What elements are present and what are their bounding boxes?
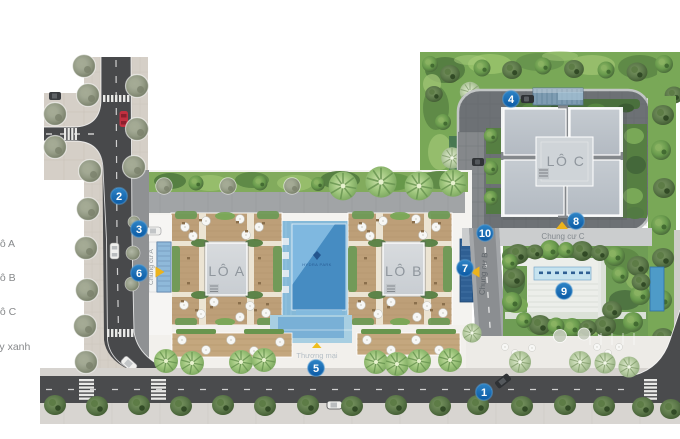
svg-text:7: 7: [462, 263, 468, 275]
svg-text:Thương mại: Thương mại: [296, 351, 338, 360]
svg-text:LÔ A: LÔ A: [208, 263, 245, 279]
svg-text:9: 9: [561, 286, 567, 298]
svg-text:Lô B: Lô B: [0, 272, 16, 284]
svg-text:5: 5: [313, 363, 319, 375]
svg-text:1: 1: [481, 387, 487, 399]
svg-text:HYDRA PARK: HYDRA PARK: [302, 262, 332, 267]
svg-text:LÔ B: LÔ B: [385, 263, 423, 279]
svg-text:4: 4: [508, 94, 515, 106]
svg-text:6: 6: [136, 268, 142, 280]
svg-text:Lô A: Lô A: [0, 238, 15, 250]
svg-text:10: 10: [479, 228, 491, 240]
svg-text:LÔ C: LÔ C: [547, 153, 586, 169]
svg-text:2: 2: [116, 191, 122, 203]
svg-text:Lô C: Lô C: [0, 306, 17, 318]
svg-text:8: 8: [573, 216, 579, 228]
svg-text:Chung cư C: Chung cư C: [541, 232, 584, 241]
svg-text:Cây xanh: Cây xanh: [0, 341, 31, 353]
svg-text:3: 3: [136, 224, 142, 236]
svg-text:Chung cư A: Chung cư A: [148, 249, 155, 285]
